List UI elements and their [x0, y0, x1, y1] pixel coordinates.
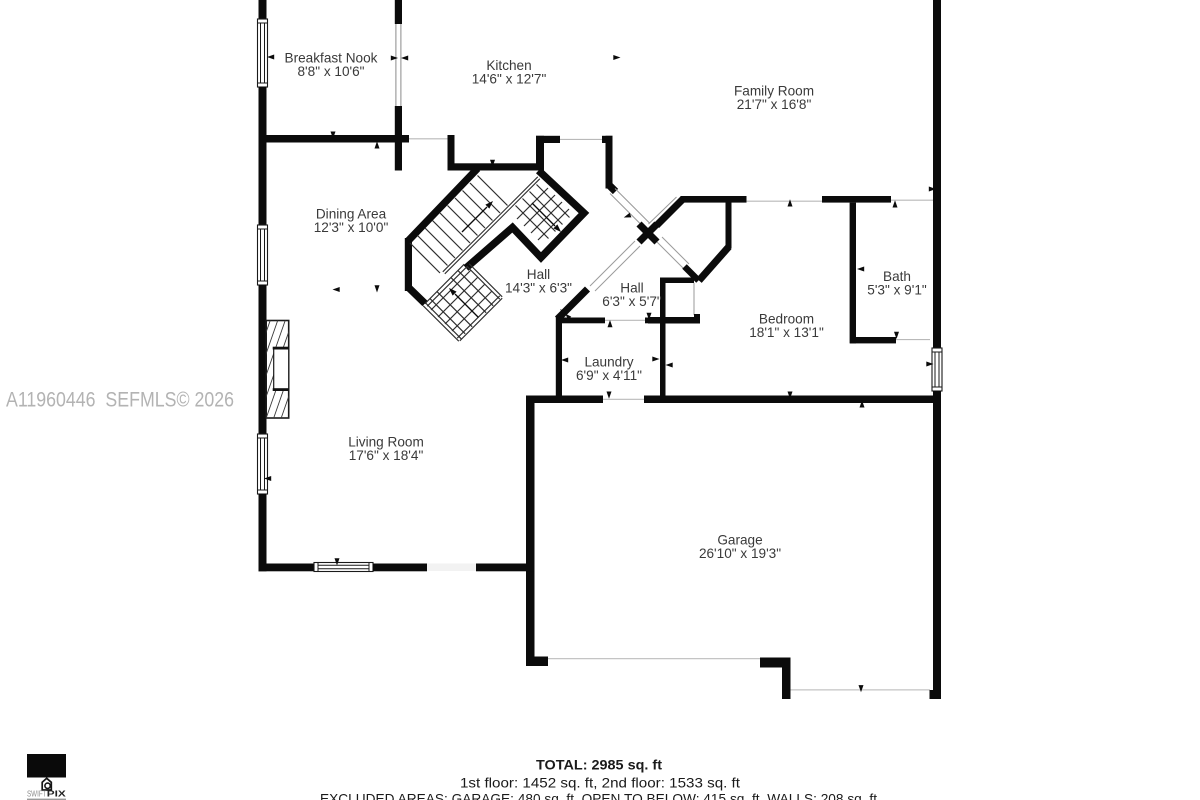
svg-text:1st floor: 1452 sq. ft, 2nd fl: 1st floor: 1452 sq. ft, 2nd floor: 1533 …: [460, 776, 740, 791]
svg-text:6'3" x 5'7": 6'3" x 5'7": [602, 294, 662, 309]
svg-text:18'1" x 13'1": 18'1" x 13'1": [749, 325, 824, 340]
svg-text:PIX: PIX: [47, 790, 67, 799]
svg-text:A11960446 SEFMLS© 2026: A11960446 SEFMLS© 2026: [6, 388, 234, 412]
svg-text:8'8" x 10'6": 8'8" x 10'6": [298, 64, 365, 79]
svg-text:SWIFT: SWIFT: [27, 790, 47, 799]
svg-text:5'3" x 9'1": 5'3" x 9'1": [867, 283, 927, 298]
svg-text:17'6" x 18'4": 17'6" x 18'4": [349, 448, 424, 463]
svg-text:TOTAL: 2985 sq. ft: TOTAL: 2985 sq. ft: [536, 758, 662, 773]
svg-text:26'10" x 19'3": 26'10" x 19'3": [699, 546, 781, 561]
svg-text:14'6" x 12'7": 14'6" x 12'7": [472, 72, 547, 87]
svg-text:14'3" x 6'3": 14'3" x 6'3": [505, 281, 572, 296]
svg-text:12'3" x 10'0": 12'3" x 10'0": [314, 220, 389, 235]
svg-text:6'9" x 4'11": 6'9" x 4'11": [576, 368, 642, 383]
svg-text:EXCLUDED AREAS: GARAGE: 480 sq: EXCLUDED AREAS: GARAGE: 480 sq. ft, OPEN…: [320, 792, 877, 800]
svg-text:21'7" x 16'8": 21'7" x 16'8": [737, 97, 812, 112]
